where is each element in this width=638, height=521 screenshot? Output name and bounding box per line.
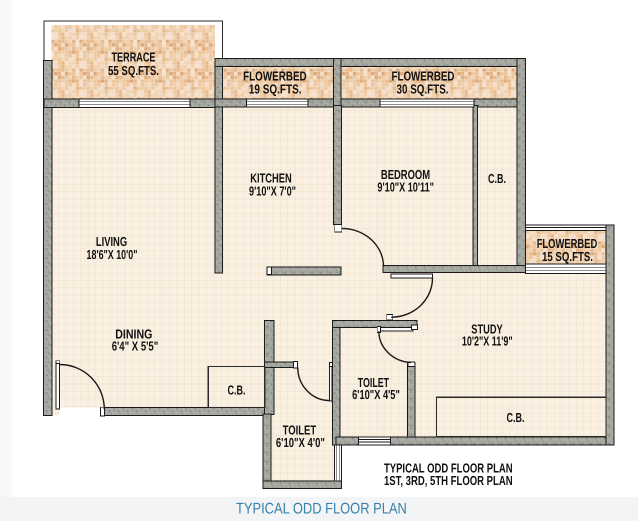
svg-text:6'10"X 4'0": 6'10"X 4'0" [276, 435, 325, 450]
svg-text:C.B.: C.B. [228, 383, 246, 398]
svg-text:15 SQ.FTS.: 15 SQ.FTS. [542, 249, 593, 264]
svg-text:C.B.: C.B. [488, 171, 506, 186]
svg-text:30 SQ.FTS.: 30 SQ.FTS. [397, 82, 449, 97]
svg-text:19 SQ.FTS.: 19 SQ.FTS. [249, 82, 302, 97]
svg-text:6'10"X 4'5": 6'10"X 4'5" [352, 387, 400, 402]
svg-text:9'10"X 7'0": 9'10"X 7'0" [249, 183, 296, 198]
svg-text:TYPICAL ODD FLOOR PLAN: TYPICAL ODD FLOOR PLAN [236, 501, 407, 518]
svg-text:C.B.: C.B. [507, 410, 525, 425]
svg-text:10'2"X 11'9": 10'2"X 11'9" [462, 334, 513, 349]
svg-text:6'4" X 5'5": 6'4" X 5'5" [112, 338, 159, 353]
svg-text:55 SQ.FTS.: 55 SQ.FTS. [108, 63, 159, 78]
svg-text:18'6"X 10'0": 18'6"X 10'0" [87, 247, 138, 262]
svg-text:9'10"X 10'11": 9'10"X 10'11" [377, 180, 434, 195]
svg-text:1ST, 3RD, 5TH FLOOR PLAN: 1ST, 3RD, 5TH FLOOR PLAN [384, 473, 513, 488]
